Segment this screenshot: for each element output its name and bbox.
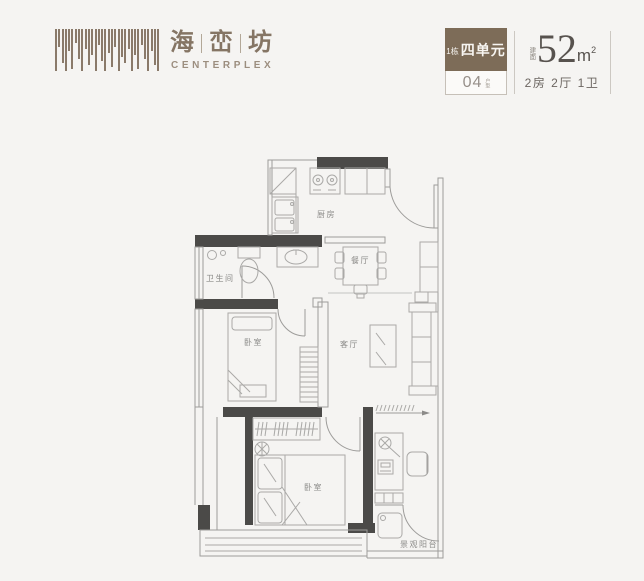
stove-icon <box>310 168 340 194</box>
bedroom2-label: 卧室 <box>304 482 323 492</box>
thin-walls <box>195 160 443 558</box>
bookshelf-icon <box>300 347 318 402</box>
rooms-summary: 2房 2厅 1卫 <box>518 74 606 91</box>
header-divider-left <box>514 31 515 94</box>
balcony-door <box>403 505 439 541</box>
brand-barcode-logo <box>55 29 163 73</box>
tv-icon <box>370 325 396 367</box>
living-label: 客厅 <box>340 339 359 349</box>
dining-area: 餐厅 <box>335 247 386 298</box>
building-number: 1栋 <box>446 46 458 57</box>
toilet-icon <box>238 247 260 283</box>
brand-char-2: 峦 <box>209 28 233 58</box>
double-bed-icon <box>255 455 345 525</box>
sofa-icon <box>409 303 438 395</box>
shower-icon <box>208 251 226 260</box>
unit-badge: 1栋 四单元 04 户型 <box>445 28 507 96</box>
structural-walls <box>195 157 388 533</box>
kitchen-label: 厨房 <box>317 209 336 219</box>
unit-badge-building-unit: 1栋 四单元 <box>445 28 507 71</box>
bedroom1-door <box>278 309 305 336</box>
area-value: 52 <box>537 30 577 68</box>
kitchen: 厨房 <box>270 168 385 233</box>
plan-number: 04 <box>463 74 483 92</box>
desk-lamp-icon <box>379 437 400 457</box>
study-nook <box>375 433 428 503</box>
chair-icon <box>407 452 428 476</box>
washing-machine-icon <box>378 513 402 538</box>
bedroom2-door <box>326 417 360 451</box>
floor-plan: 厨房 餐厅 卫生间 <box>172 140 472 575</box>
area-unit: m2 <box>577 38 596 68</box>
brand-separator <box>240 34 241 53</box>
bathroom-label: 卫生间 <box>206 273 235 283</box>
brand-name: 海 峦 坊 <box>170 28 272 58</box>
brand-char-1: 海 <box>170 28 194 58</box>
bedroom1-label: 卧室 <box>244 337 263 347</box>
floor-plan-drawing: 厨房 餐厅 卫生间 <box>172 140 472 570</box>
entry-cabinet-icon <box>420 242 438 292</box>
plan-number-label: 户型 <box>484 78 489 88</box>
brand-char-3: 坊 <box>248 28 272 58</box>
area-prefix-label: 建面 <box>528 47 535 60</box>
threshold <box>375 493 403 503</box>
header-divider-right <box>610 31 611 94</box>
balcony: 景观阳台 <box>378 513 438 549</box>
wardrobe-icon <box>253 418 320 440</box>
single-bed-icon <box>228 313 276 401</box>
dining-table-icon <box>335 247 386 298</box>
unit-plan-number: 04 户型 <box>445 71 507 95</box>
entry-direction-arrow <box>376 405 430 416</box>
fan-icon <box>255 442 269 456</box>
brand-separator <box>201 34 202 53</box>
balcony-label: 景观阳台 <box>400 539 438 549</box>
area-info: 建面 52 m2 2房 2厅 1卫 <box>518 30 606 96</box>
washbasin-icon <box>277 247 318 267</box>
bathroom: 卫生间 <box>206 247 318 283</box>
dining-label: 餐厅 <box>351 256 370 265</box>
printer-icon <box>378 460 393 474</box>
bedroom2: 卧室 <box>253 418 345 525</box>
entry-door <box>390 185 438 228</box>
brand-english-name: CENTERPLEX <box>171 60 274 71</box>
kitchen-sink-icon <box>272 197 298 233</box>
side-table-icon <box>415 292 428 302</box>
unit-name: 四单元 <box>461 40 506 60</box>
